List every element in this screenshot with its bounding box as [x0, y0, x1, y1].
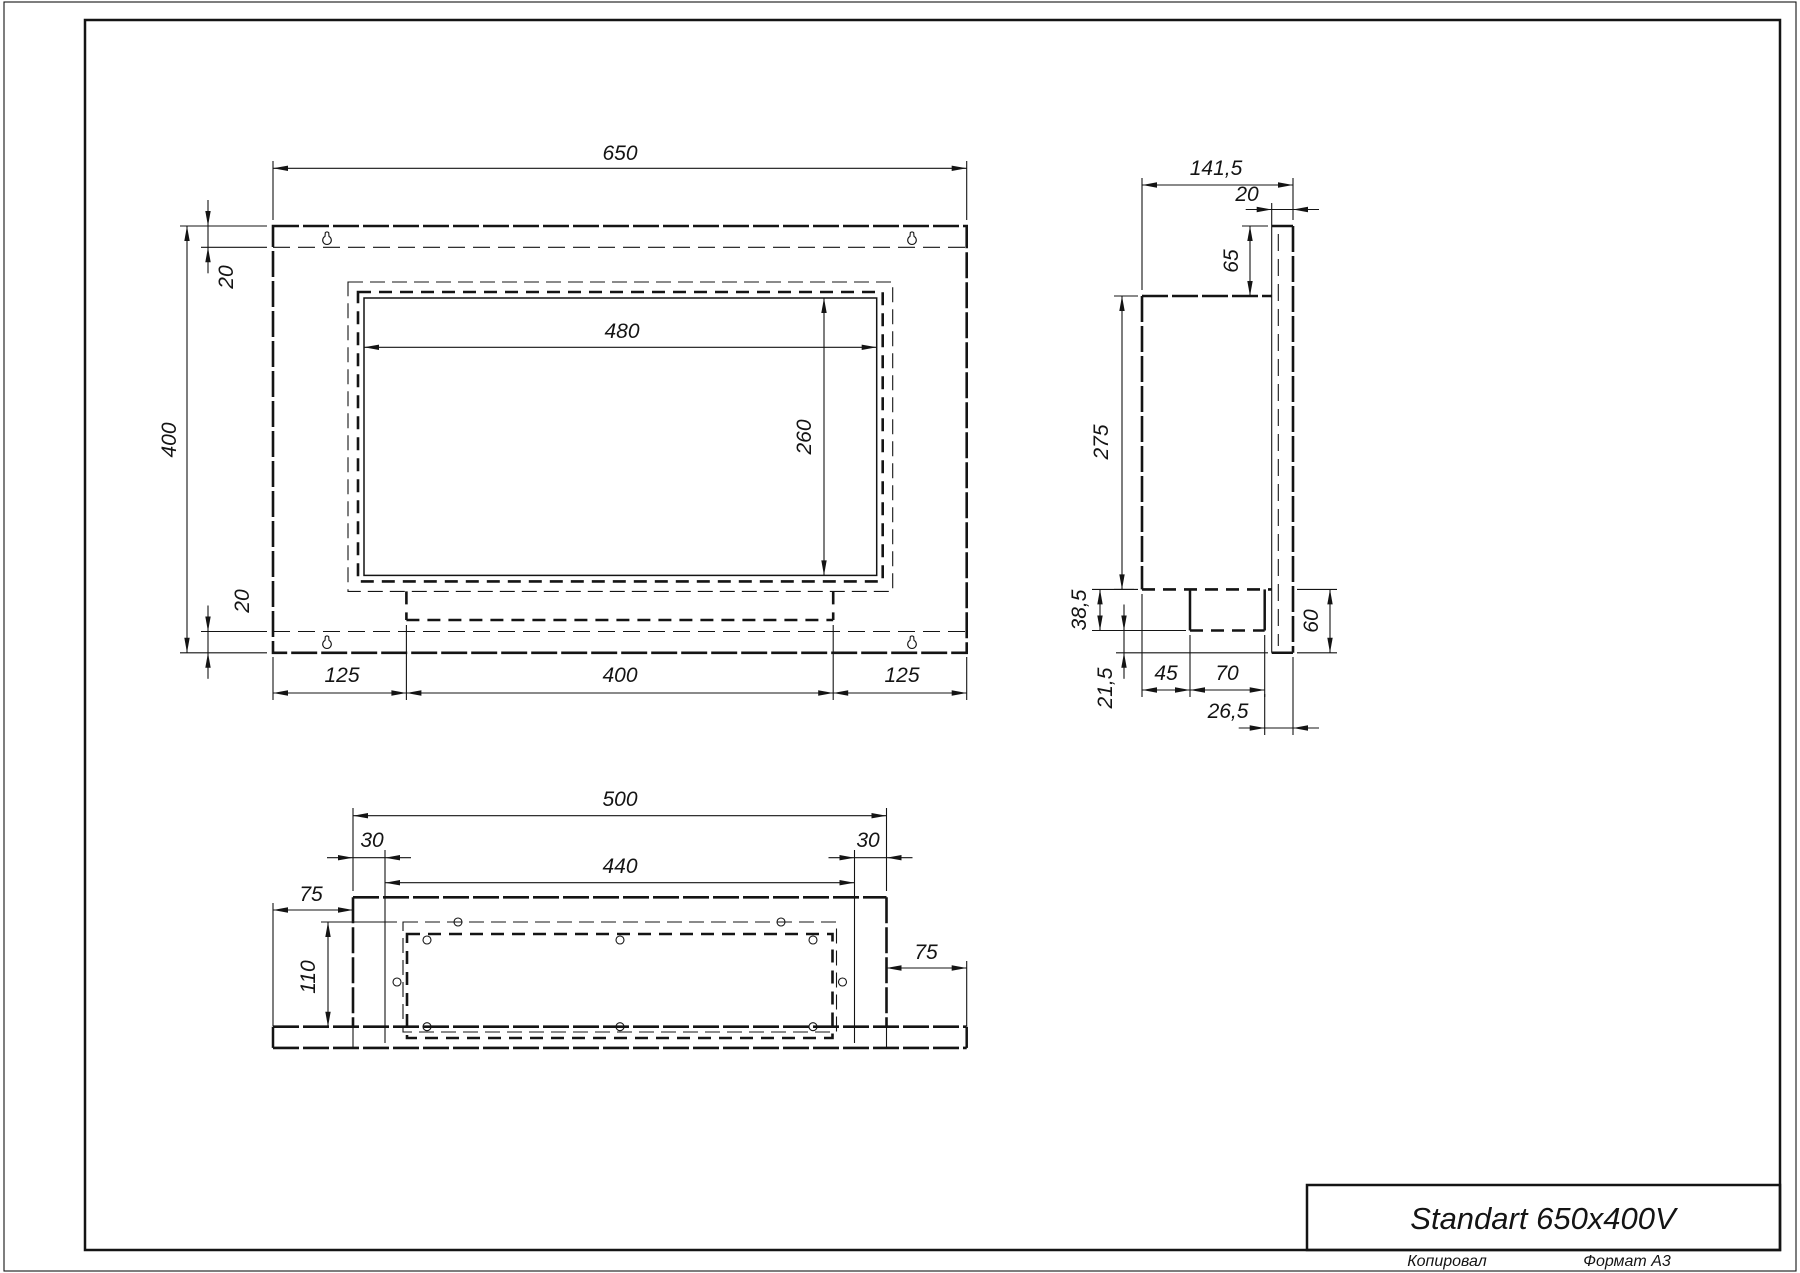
mount-hole	[423, 936, 431, 944]
dim-arrow	[1097, 589, 1102, 604]
dim-arrow	[1250, 687, 1265, 692]
dim-arrow	[1121, 616, 1126, 631]
dim-arrow	[1293, 207, 1308, 212]
keyhole-mount-icon	[908, 636, 917, 649]
flange-outline	[273, 226, 967, 653]
dim-label: 38,5	[1068, 589, 1091, 630]
dim-arrow	[887, 855, 902, 860]
dim-arrow	[205, 211, 210, 226]
dim-label: 125	[324, 664, 359, 687]
dim-label: 20	[1234, 183, 1259, 206]
dim-arrow	[1121, 653, 1126, 668]
insert-outer-frame	[403, 922, 837, 1032]
dim-arrow	[385, 855, 400, 860]
dim-arrow	[1119, 296, 1124, 311]
dim-arrow	[840, 880, 855, 885]
dim-label: 20	[231, 589, 254, 614]
dim-arrow	[833, 690, 848, 695]
dim-arrow	[1247, 281, 1252, 296]
dim-arrow	[1278, 182, 1293, 187]
dim-arrow	[1247, 226, 1252, 241]
drawing-frame	[85, 20, 1780, 1250]
format-label: Формат А3	[1583, 1253, 1671, 1270]
dim-arrow	[1097, 616, 1102, 631]
dim-arrow	[273, 907, 288, 912]
dim-label: 260	[793, 419, 816, 455]
copied-label: Копировал	[1407, 1253, 1487, 1270]
dim-arrow	[184, 226, 189, 241]
keyhole-mount-icon	[323, 232, 332, 245]
mount-hole	[809, 936, 817, 944]
dim-label: 141,5	[1190, 157, 1243, 180]
dim-label: 500	[602, 788, 637, 811]
dim-arrow	[1119, 574, 1124, 589]
dim-arrow	[1190, 687, 1205, 692]
dim-arrow	[840, 855, 855, 860]
dim-arrow	[821, 298, 826, 313]
dim-arrow	[1142, 182, 1157, 187]
dim-arrow	[205, 653, 210, 668]
dim-arrow	[338, 855, 353, 860]
dim-label: 21,5	[1094, 667, 1117, 709]
dim-arrow	[952, 690, 967, 695]
dim-arrow	[952, 166, 967, 171]
dim-arrow	[406, 690, 421, 695]
dim-label: 125	[884, 664, 919, 687]
dim-arrow	[391, 690, 406, 695]
dim-arrow	[1293, 725, 1308, 730]
mount-hole	[393, 978, 401, 986]
dim-arrow	[1250, 725, 1265, 730]
title-block: Standart 650x400V Копировал Формат А3	[1307, 1185, 1780, 1270]
dim-arrow	[1327, 589, 1332, 604]
mount-hole	[839, 978, 847, 986]
dim-label: 70	[1215, 662, 1239, 685]
dim-arrow	[821, 560, 826, 575]
dim-label: 400	[602, 664, 637, 687]
dim-label: 75	[299, 883, 323, 906]
dim-arrow	[338, 907, 353, 912]
dim-label: 400	[158, 422, 181, 457]
dim-label: 26,5	[1207, 700, 1249, 723]
dim-arrow	[862, 345, 877, 350]
technical-drawing: 6504002020480260125400125 141,5206527538…	[0, 0, 1800, 1273]
dim-arrow	[273, 690, 288, 695]
dim-arrow	[184, 638, 189, 653]
dim-arrow	[205, 247, 210, 262]
dim-arrow	[273, 166, 288, 171]
dim-label: 65	[1220, 249, 1243, 273]
side-view: 141,5206527538,521,5457026,560	[1068, 157, 1337, 735]
front-view: 6504002020480260125400125	[158, 142, 967, 700]
drawing-sheet: 6504002020480260125400125 141,5206527538…	[0, 0, 1800, 1273]
dim-arrow	[952, 965, 967, 970]
dim-label: 440	[602, 855, 637, 878]
bottom-view: 50030440307511075	[273, 788, 967, 1048]
dim-arrow	[887, 965, 902, 970]
keyhole-mount-icon	[908, 232, 917, 245]
dim-arrow	[818, 690, 833, 695]
dim-label: 45	[1154, 662, 1178, 685]
dim-label: 480	[604, 320, 639, 343]
dim-label: 20	[215, 265, 238, 290]
dim-label: 110	[297, 960, 320, 994]
dim-label: 75	[914, 941, 938, 964]
dim-arrow	[364, 345, 379, 350]
dim-label: 60	[1300, 609, 1323, 633]
dim-arrow	[353, 813, 368, 818]
dim-arrow	[872, 813, 887, 818]
dim-label: 30	[360, 829, 384, 852]
keyhole-mount-icon	[323, 636, 332, 649]
drawing-title: Standart 650x400V	[1410, 1201, 1679, 1236]
dim-label: 30	[856, 829, 880, 852]
dim-arrow	[1175, 687, 1190, 692]
dim-arrow	[1327, 638, 1332, 653]
dim-arrow	[385, 880, 400, 885]
dim-label: 650	[602, 142, 637, 165]
dim-arrow	[205, 617, 210, 632]
dim-arrow	[1257, 207, 1272, 212]
dim-arrow	[325, 1012, 330, 1027]
dim-arrow	[1142, 687, 1157, 692]
dim-arrow	[325, 922, 330, 937]
dim-label: 275	[1090, 424, 1113, 460]
mount-hole	[616, 936, 624, 944]
